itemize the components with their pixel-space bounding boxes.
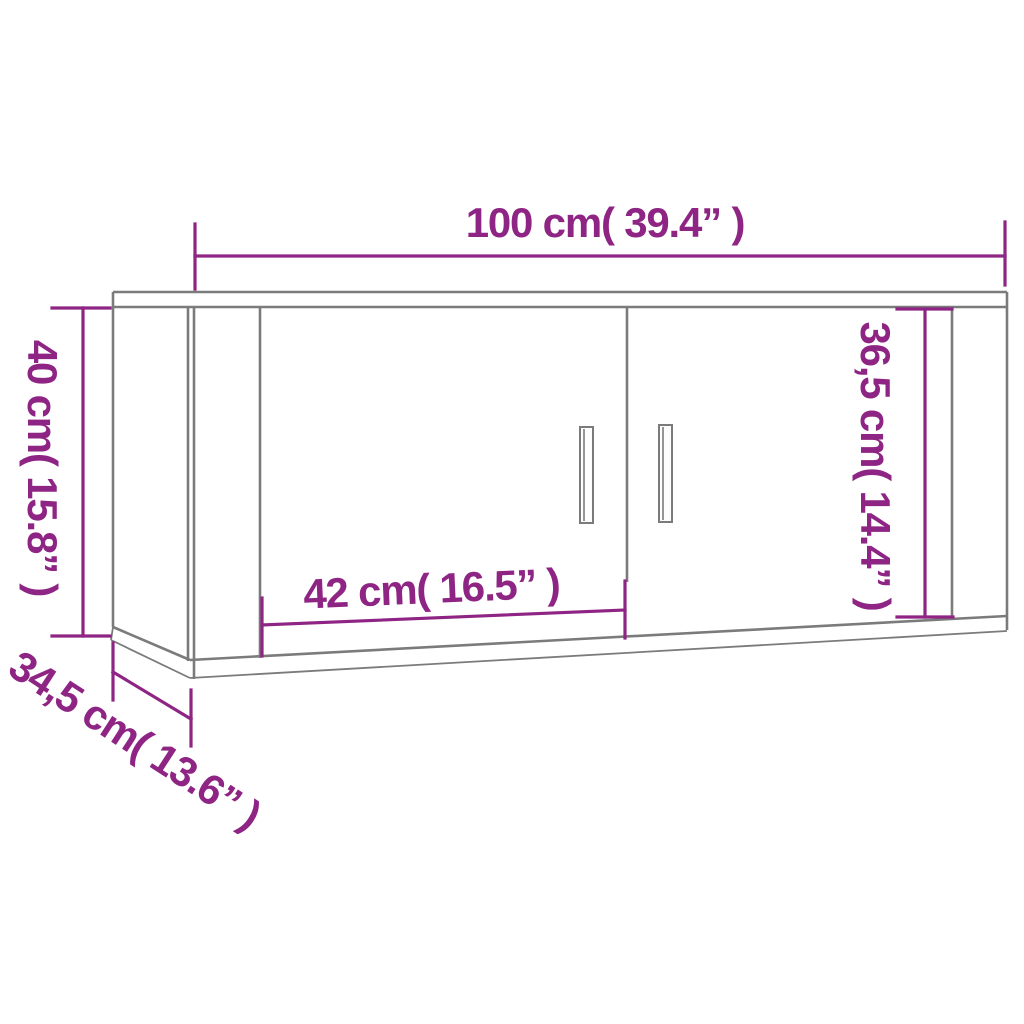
left-bottom-closure-edge [111, 627, 113, 640]
product-dimension-diagram: 100 cm( 39.4” ) 40 cm( 15.8” ) 36,5 cm( … [0, 0, 1024, 1024]
right-handle-body [659, 425, 672, 522]
depth-label: 34,5 cm( 13.6” ) [1, 641, 269, 838]
left-bottom-edge [113, 627, 190, 660]
total-height-label: 40 cm( 15.8” ) [19, 340, 66, 596]
left-handle-body [580, 427, 593, 523]
right-door-handle [659, 425, 672, 522]
door-width-label: 42 cm( 16.5” ) [302, 559, 560, 617]
total-width-label: 100 cm( 39.4” ) [466, 199, 745, 246]
door-height-label: 36,5 cm( 14.4” ) [852, 322, 899, 611]
diagram-canvas: 100 cm( 39.4” ) 40 cm( 15.8” ) 36,5 cm( … [0, 0, 1024, 1024]
left-door-handle [580, 427, 593, 523]
left-bottom-lower-edge [111, 640, 190, 678]
dimension-labels: 100 cm( 39.4” ) 40 cm( 15.8” ) 36,5 cm( … [1, 199, 899, 838]
